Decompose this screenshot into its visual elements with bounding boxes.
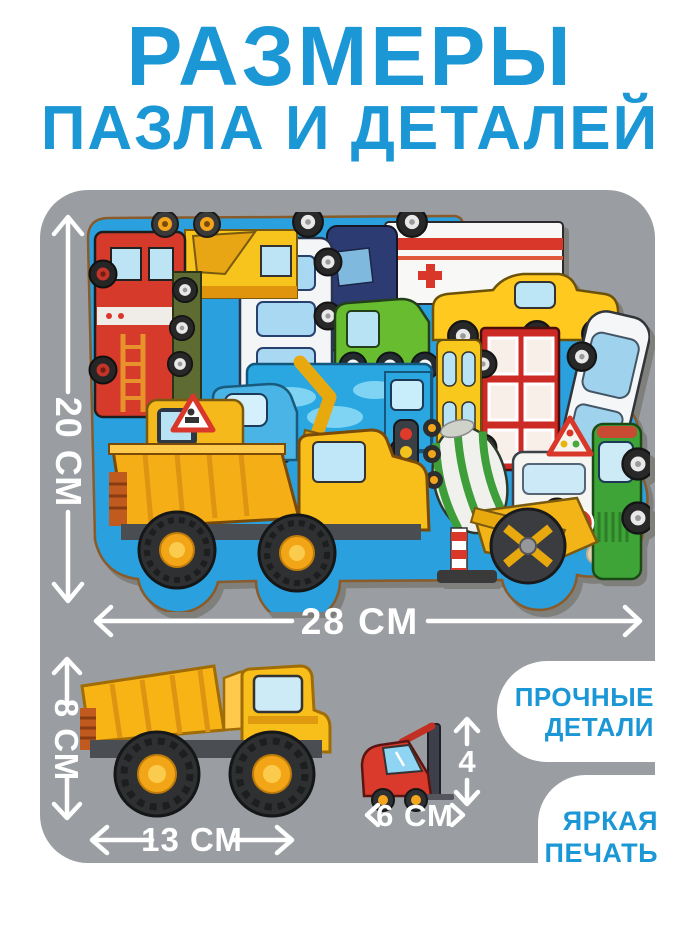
feature-text: ПЕЧАТЬ [538, 837, 700, 869]
puzzle-wheel [397, 212, 427, 237]
feature-tab-durable-parts: ПРОЧНЫЕ ДЕТАЛИ [497, 661, 700, 762]
puzzle-board-illustration [85, 212, 650, 612]
product-infographic: РАЗМЕРЫ ПАЗЛА И ДЕТАЛЕЙ [0, 0, 700, 933]
puzzle-wheel [152, 212, 178, 237]
feature-text: ЯРКАЯ [538, 805, 700, 837]
puzzle-wheel [170, 316, 194, 340]
forklift-height-label: 4 [458, 744, 475, 780]
puzzle-height-label: 20 СМ [47, 397, 89, 508]
dump-truck-illustration [72, 648, 340, 826]
truck-height-label: 8 СМ [47, 699, 85, 781]
puzzle-wheel [293, 212, 323, 237]
puzzle-wheel [194, 212, 220, 237]
feature-text: ДЕТАЛИ [497, 712, 700, 742]
puzzle-wheel [315, 249, 342, 276]
page-title-line2: ПАЗЛА И ДЕТАЛЕЙ [0, 98, 700, 160]
feature-text: ПРОЧНЫЕ [497, 682, 700, 712]
puzzle-wheel [622, 502, 650, 533]
truck-wheel [230, 732, 314, 816]
truck-wheel [115, 732, 199, 816]
dump-truck-wheel [259, 515, 335, 591]
puzzle-width-label: 28 СМ [301, 601, 420, 643]
feature-tab-bright-print: ЯРКАЯ ПЕЧАТЬ [538, 775, 700, 933]
tractor-piece [593, 424, 641, 579]
page-title-line1: РАЗМЕРЫ [0, 14, 700, 98]
puzzle-wheel [90, 357, 117, 384]
puzzle-wheel [168, 352, 192, 376]
puzzle-wheel [90, 261, 117, 288]
forklift-width-label: 6 СМ [376, 798, 454, 834]
truck-width-label: 13 СМ [141, 821, 243, 859]
puzzle-wheel [173, 278, 197, 302]
dump-truck-wheel [139, 512, 215, 588]
puzzle-wheel [622, 448, 650, 479]
